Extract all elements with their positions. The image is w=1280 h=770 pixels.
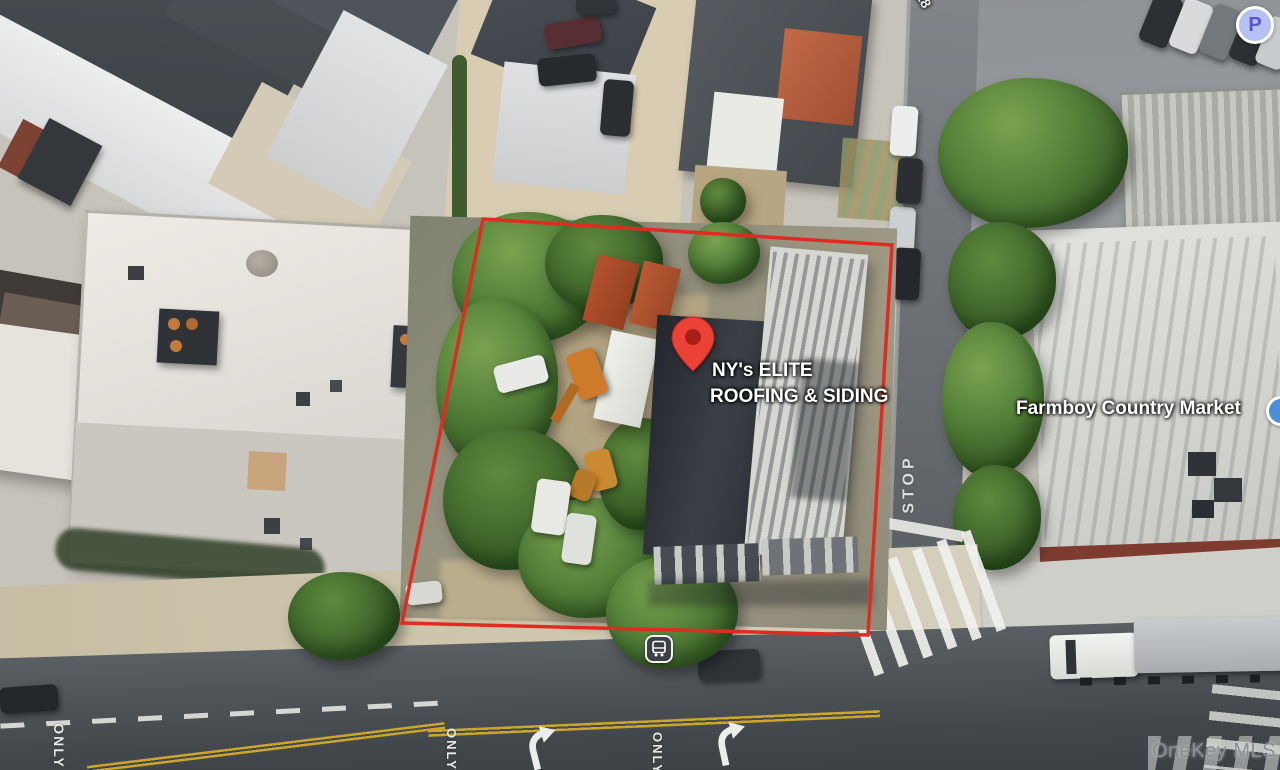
poi-label-market[interactable]: Farmboy Country Market [1016,398,1241,420]
pin-label-line2[interactable]: ROOFING & SIDING [710,386,888,408]
watermark: OneKey MLS [1152,740,1276,763]
parking-icon[interactable]: P [1236,6,1274,44]
satellite-map[interactable]: ONLY ONLY ONLY STOP [0,0,1280,770]
property-boundary [0,0,1280,770]
pin-label-line1[interactable]: NY's ELITE [712,360,813,382]
parking-icon-letter: P [1248,15,1261,35]
location-pin-icon[interactable] [671,316,715,372]
